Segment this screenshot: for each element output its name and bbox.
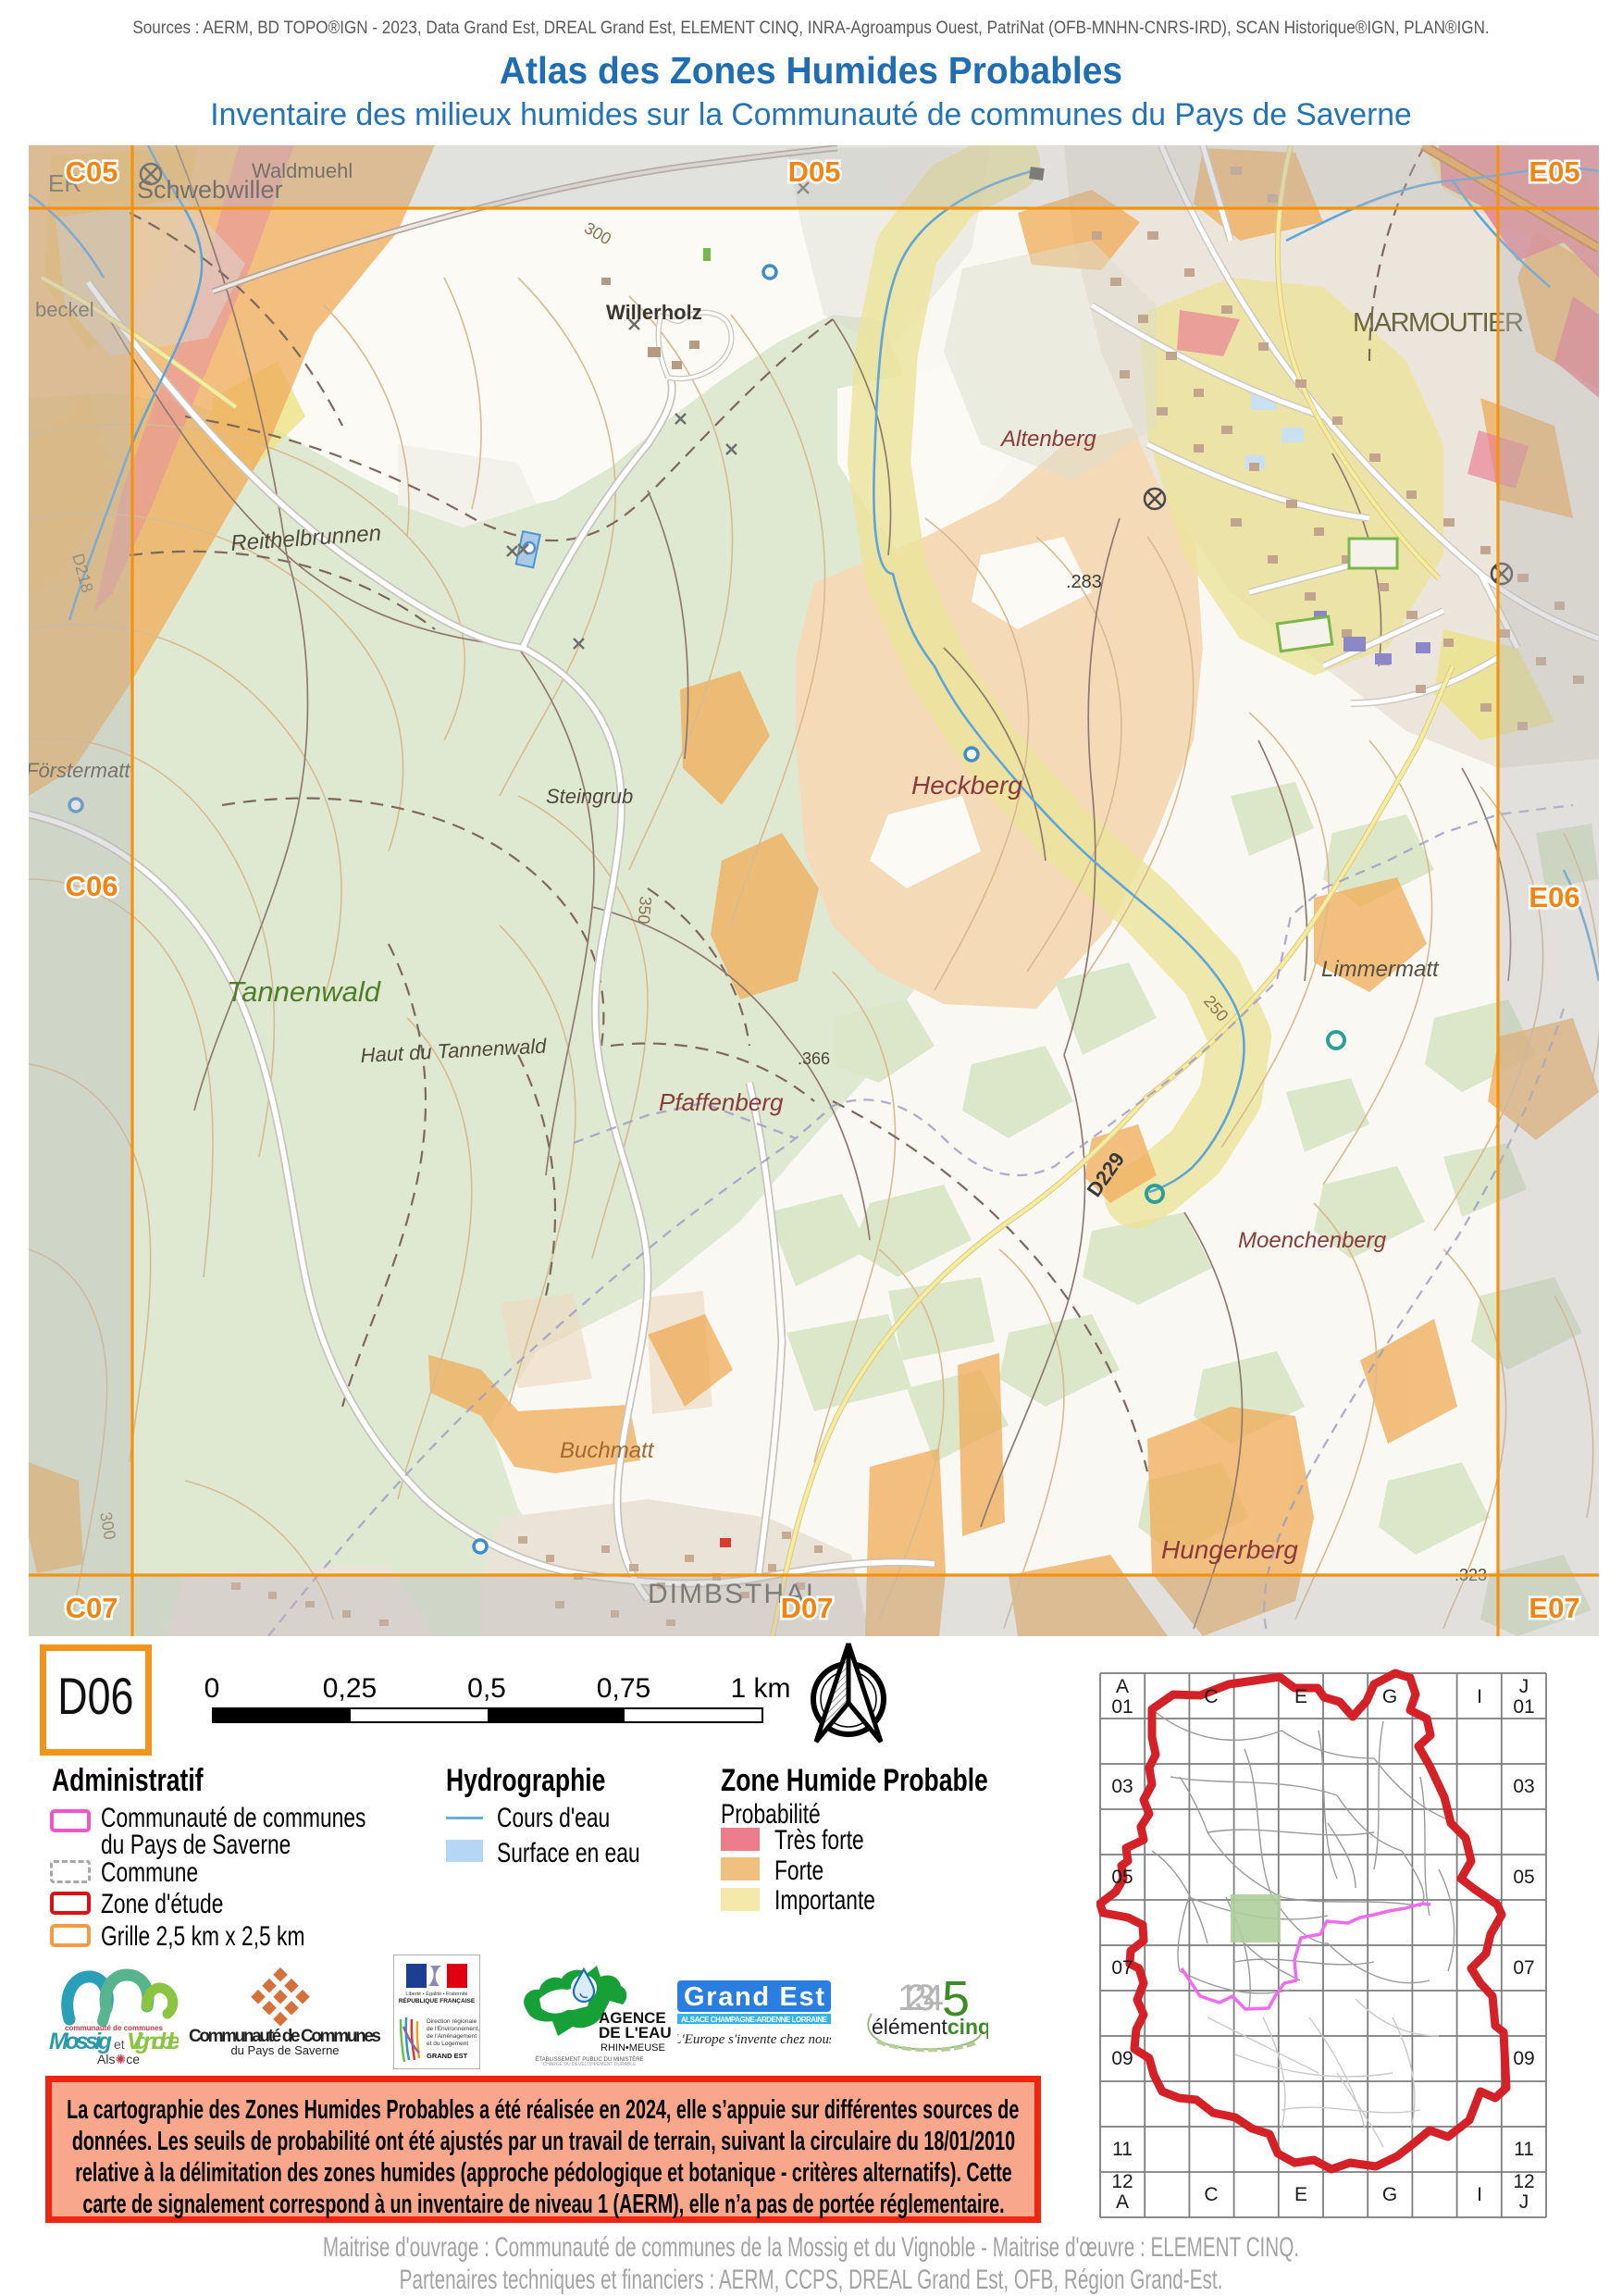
svg-text:L'Europe s'invente chez nous: L'Europe s'invente chez nous xyxy=(677,2032,831,2047)
svg-text:et du Logement: et du Logement xyxy=(427,2041,468,2047)
svg-text:C07: C07 xyxy=(66,1592,118,1624)
svg-text:C: C xyxy=(1204,1686,1218,1707)
svg-text:Limmermatt: Limmermatt xyxy=(1321,957,1440,982)
svg-text:A: A xyxy=(1116,1676,1129,1697)
svg-text:DE L'EAU: DE L'EAU xyxy=(599,2024,672,2042)
svg-text:C06: C06 xyxy=(66,870,118,902)
svg-text:A: A xyxy=(1116,2191,1129,2213)
svg-text:Liberté • Égalité • Fraternité: Liberté • Égalité • Fraternité xyxy=(405,1991,467,1997)
svg-text:de l'Aménagement: de l'Aménagement xyxy=(427,2033,477,2040)
svg-text:et: et xyxy=(114,2037,125,2052)
svg-text:E07: E07 xyxy=(1529,1592,1579,1624)
svg-text:12: 12 xyxy=(1513,2171,1534,2192)
svg-text:07: 07 xyxy=(1111,1957,1133,1979)
svg-text:01: 01 xyxy=(1513,1696,1534,1718)
svg-text:G: G xyxy=(1382,2184,1397,2205)
svg-text:de l'Environnement,: de l'Environnement, xyxy=(427,2026,479,2032)
svg-text:J: J xyxy=(1519,1676,1529,1697)
svg-text:09: 09 xyxy=(1513,2048,1534,2069)
svg-text:Altenberg: Altenberg xyxy=(999,427,1096,452)
svg-text:09: 09 xyxy=(1111,2048,1133,2069)
svg-text:Hungerberg: Hungerberg xyxy=(1161,1535,1298,1564)
svg-text:RHIN•MEUSE: RHIN•MEUSE xyxy=(601,2042,665,2054)
svg-text:D07: D07 xyxy=(781,1592,834,1624)
svg-text:RÉPUBLIQUE FRANÇAISE: RÉPUBLIQUE FRANÇAISE xyxy=(399,1996,476,2004)
svg-text:01: 01 xyxy=(1111,1696,1133,1718)
svg-text:Direction régionale: Direction régionale xyxy=(427,2018,477,2025)
svg-text:E06: E06 xyxy=(1529,881,1579,913)
svg-text:Buchmatt: Buchmatt xyxy=(560,1438,655,1463)
svg-text:Als✺ce: Als✺ce xyxy=(97,2052,140,2066)
svg-text:350: 350 xyxy=(634,896,655,925)
svg-text:.366: .366 xyxy=(798,1049,830,1068)
svg-text:Pfaffenberg: Pfaffenberg xyxy=(659,1088,784,1116)
svg-text:Willerholz: Willerholz xyxy=(606,301,702,324)
svg-text:11: 11 xyxy=(1514,2139,1534,2160)
svg-text:12: 12 xyxy=(1111,2171,1133,2192)
svg-text:Mossig: Mossig xyxy=(49,2029,112,2054)
svg-text:J: J xyxy=(1519,2191,1529,2213)
svg-text:Heckberg: Heckberg xyxy=(911,771,1022,800)
svg-text:11: 11 xyxy=(1112,2139,1133,2160)
svg-text:du Pays de Saverne: du Pays de Saverne xyxy=(230,2043,339,2056)
svg-text:05: 05 xyxy=(1513,1867,1534,1888)
svg-text:Vignoble: Vignoble xyxy=(127,2029,179,2054)
svg-text:élémentcinq: élémentcinq xyxy=(872,2015,988,2039)
svg-text:.283: .283 xyxy=(1066,572,1102,592)
svg-text:07: 07 xyxy=(1513,1957,1534,1979)
svg-text:Steingrub: Steingrub xyxy=(546,785,633,808)
svg-text:ALSACE CHAMPAGNE-ARDENNE LORRA: ALSACE CHAMPAGNE-ARDENNE LORRAINE xyxy=(681,2016,828,2024)
svg-text:C05: C05 xyxy=(66,155,118,188)
svg-text:03: 03 xyxy=(1111,1776,1133,1797)
svg-text:GRAND EST: GRAND EST xyxy=(427,2052,468,2060)
svg-text:Tannenwald: Tannenwald xyxy=(227,975,382,1008)
svg-text:G: G xyxy=(1382,1686,1397,1707)
svg-text:E05: E05 xyxy=(1529,155,1579,188)
svg-text:05: 05 xyxy=(1111,1867,1133,1888)
svg-text:D05: D05 xyxy=(788,155,841,188)
svg-text:I: I xyxy=(1477,2184,1482,2205)
svg-text:Moenchenberg: Moenchenberg xyxy=(1238,1228,1387,1253)
svg-text:1234: 1234 xyxy=(898,1978,944,2018)
svg-text:E: E xyxy=(1294,2184,1307,2205)
svg-text:C: C xyxy=(1204,2184,1218,2205)
svg-text:CHARGÉ DU DÉVELOPPEMENT DURABL: CHARGÉ DU DÉVELOPPEMENT DURABLE xyxy=(543,2061,637,2066)
svg-text:I: I xyxy=(1477,1686,1482,1707)
svg-text:03: 03 xyxy=(1513,1776,1534,1797)
svg-text:E: E xyxy=(1294,1686,1307,1707)
